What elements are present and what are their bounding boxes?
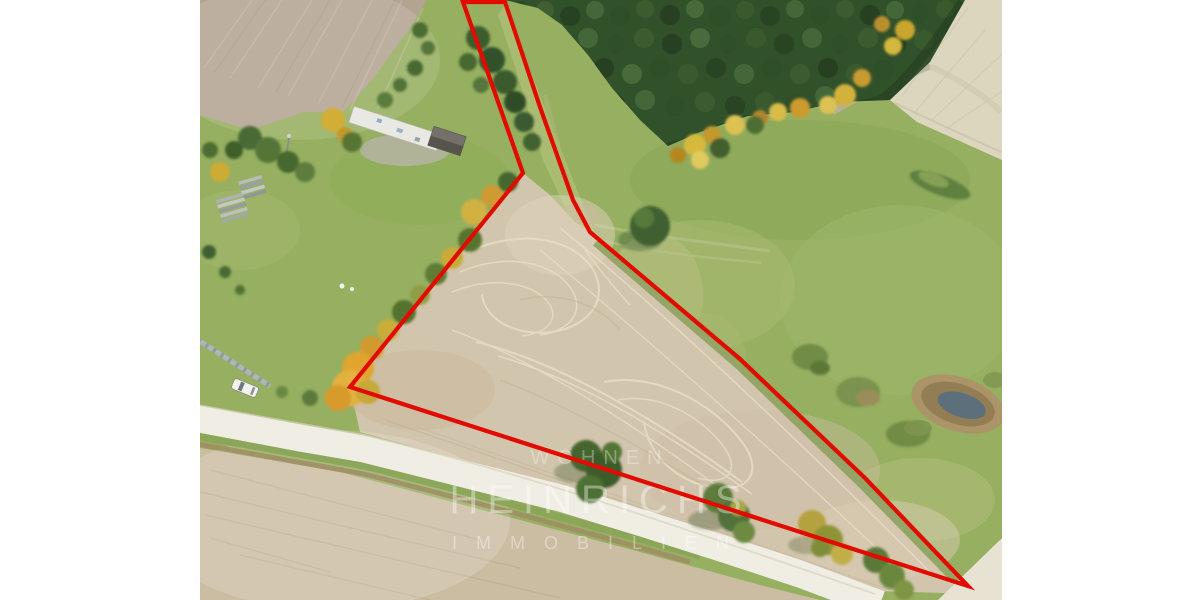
screenshot-canvas: WOHNEN HEINRICHS IMMOBILIEN [0,0,1200,600]
photo-content: WOHNEN HEINRICHS IMMOBILIEN [150,0,1020,600]
watermark-line-3: IMMOBILIEN [452,533,748,553]
white-speck [340,284,345,289]
aerial-photo: WOHNEN HEINRICHS IMMOBILIEN [0,0,1200,600]
white-speck [350,287,354,291]
